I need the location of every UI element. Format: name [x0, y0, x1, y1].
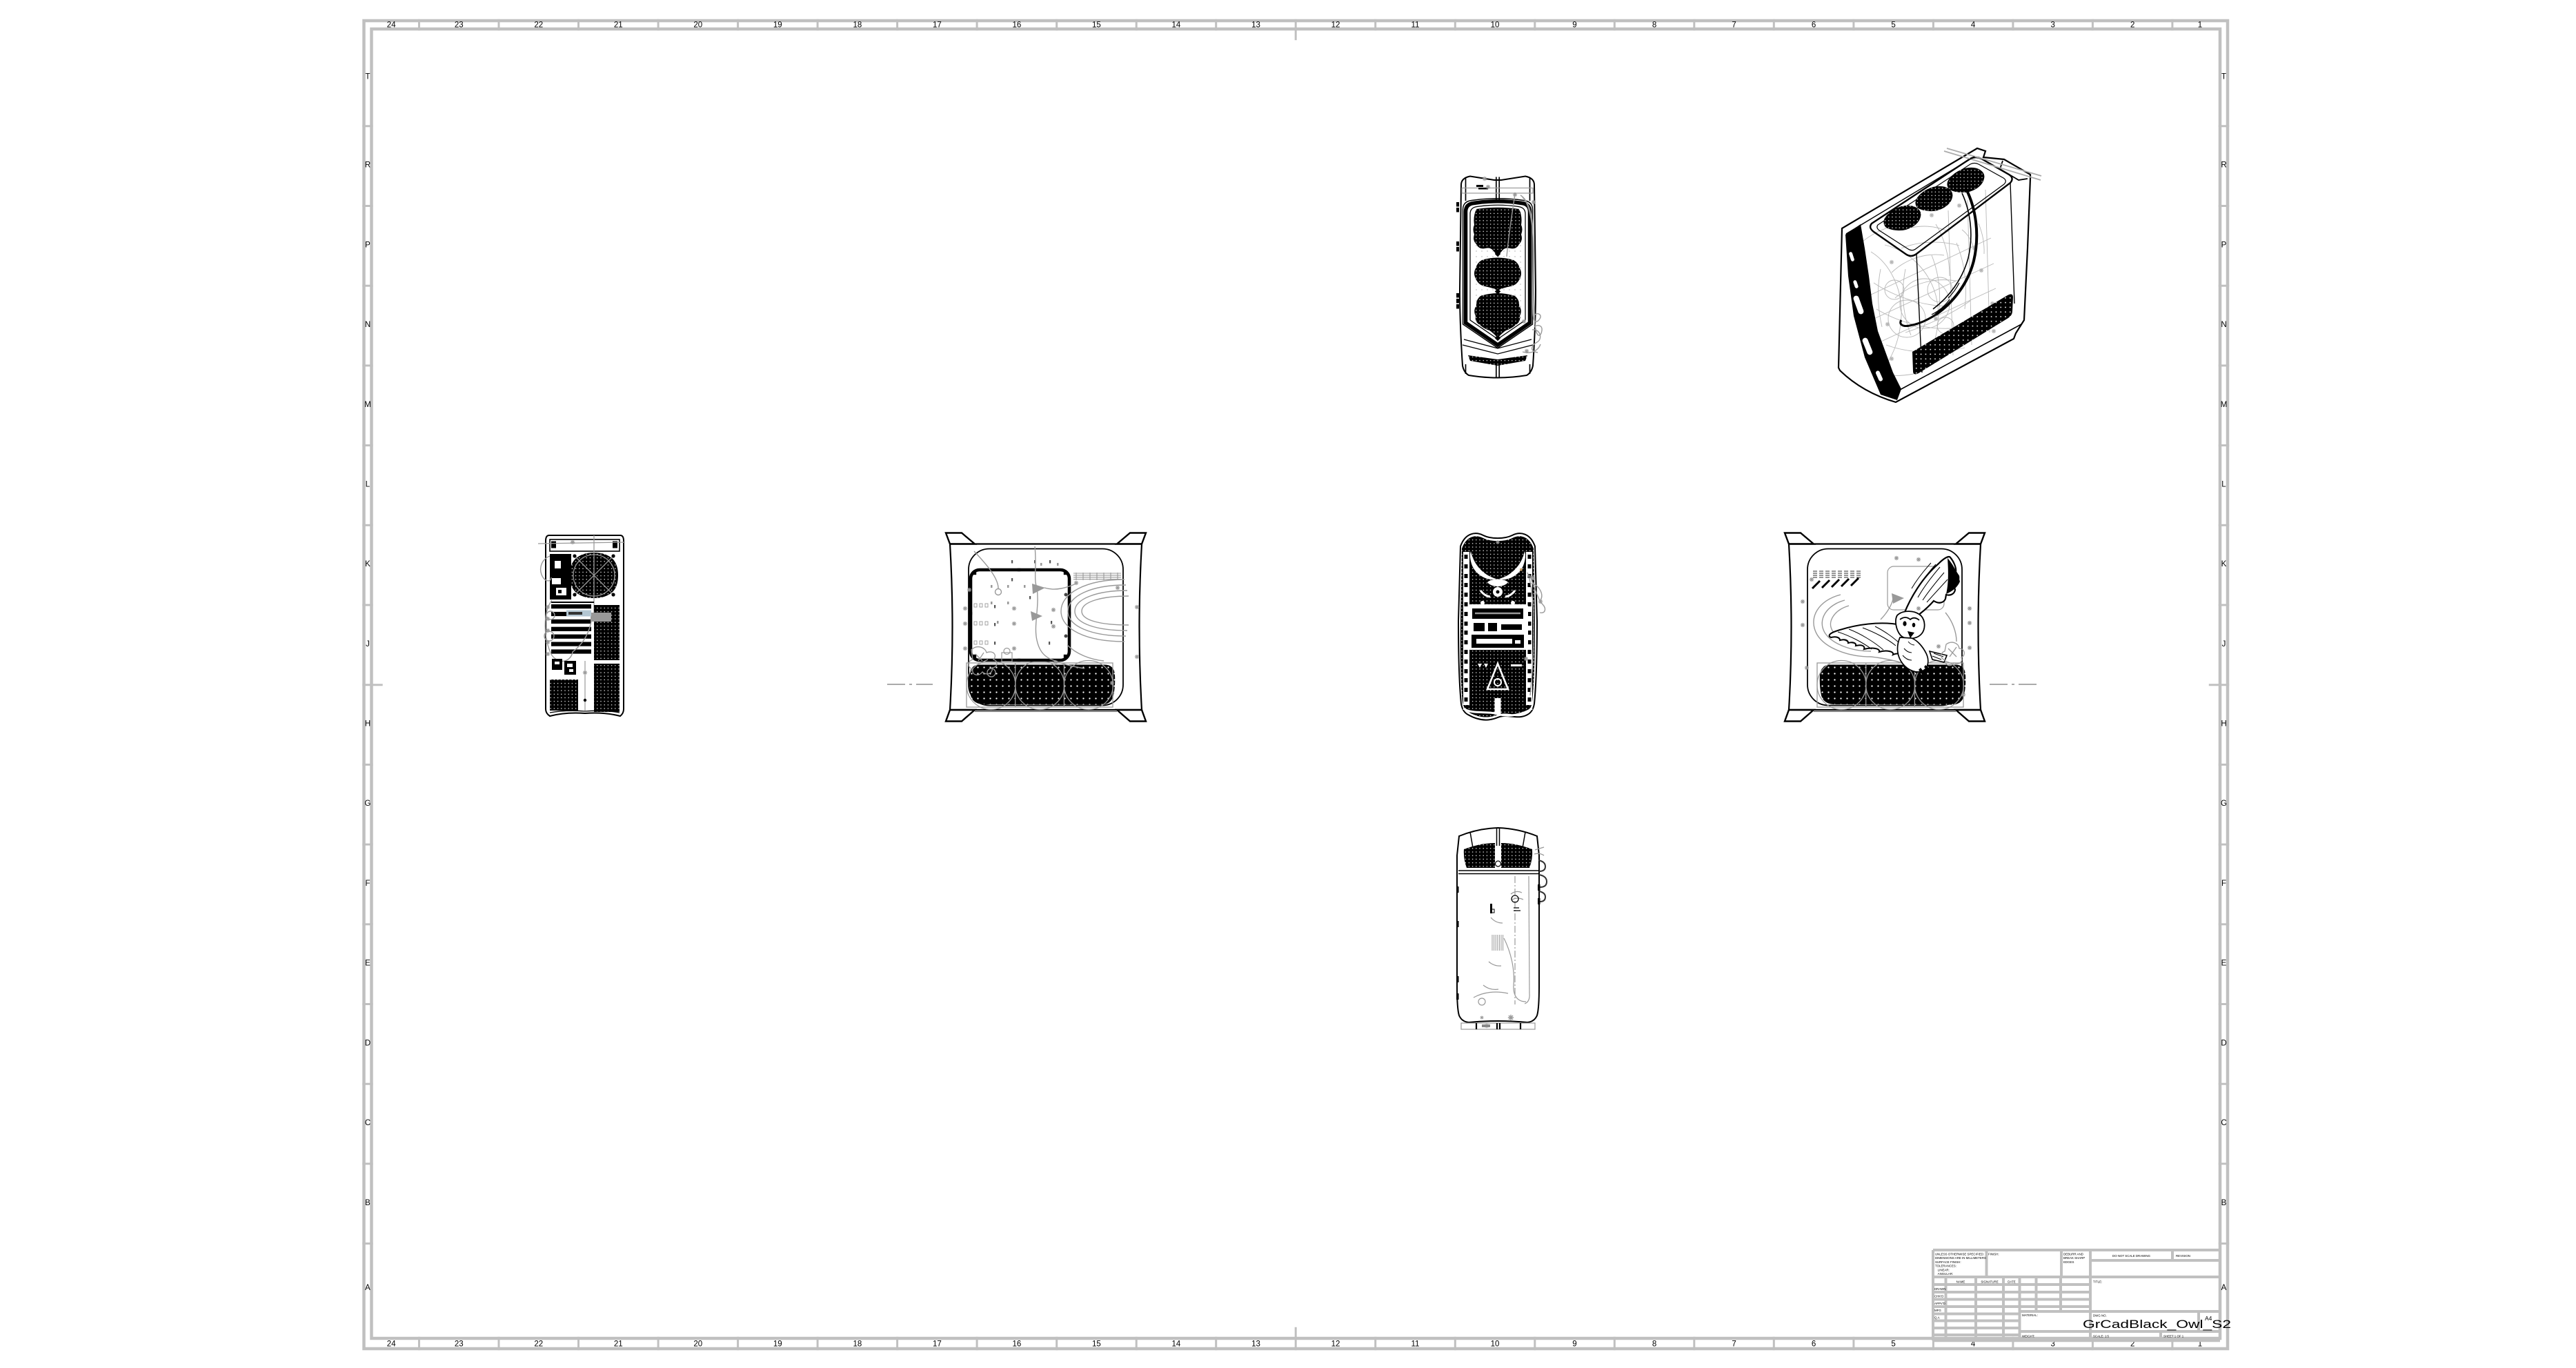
svg-text:T: T: [2221, 72, 2226, 81]
svg-text:SHEET 1 OF 1: SHEET 1 OF 1: [2163, 1335, 2184, 1338]
svg-text:9: 9: [1572, 21, 1576, 30]
svg-text:18: 18: [853, 1340, 862, 1349]
svg-text:16: 16: [1013, 21, 1022, 30]
svg-text:SURFACE FINISH:: SURFACE FINISH:: [1935, 1260, 1961, 1264]
svg-text:16: 16: [1013, 1340, 1022, 1349]
svg-text:UNLESS OTHERWISE SPECIFIED:: UNLESS OTHERWISE SPECIFIED:: [1935, 1253, 1984, 1256]
svg-text:DIMENSIONS ARE IN MILLIMETERS: DIMENSIONS ARE IN MILLIMETERS: [1935, 1256, 1986, 1260]
svg-text:DO NOT SCALE DRAWING: DO NOT SCALE DRAWING: [2112, 1254, 2150, 1258]
svg-text:TITLE:: TITLE:: [2093, 1280, 2102, 1284]
svg-text:7: 7: [1732, 21, 1736, 30]
svg-text:C: C: [365, 1119, 370, 1127]
svg-text:REVISION: REVISION: [2176, 1254, 2190, 1258]
svg-text:14: 14: [1172, 1340, 1181, 1349]
svg-text:DEBURR AND: DEBURR AND: [2063, 1253, 2083, 1256]
svg-text:P: P: [2221, 241, 2227, 249]
svg-text:10: 10: [1491, 21, 1500, 30]
svg-text:10: 10: [1491, 1340, 1500, 1349]
svg-text:7: 7: [1732, 1340, 1736, 1349]
svg-text:F: F: [2221, 880, 2226, 888]
svg-text:17: 17: [933, 21, 942, 30]
svg-text:R: R: [365, 161, 370, 170]
svg-text:H: H: [365, 720, 370, 728]
svg-text:M: M: [2221, 401, 2228, 409]
svg-text:A: A: [365, 1284, 370, 1292]
svg-text:6: 6: [1812, 1340, 1816, 1349]
svg-text:22: 22: [534, 1340, 543, 1349]
svg-text:2: 2: [2130, 21, 2134, 30]
svg-text:SIGNATURE: SIGNATURE: [1981, 1280, 1998, 1284]
svg-text:L: L: [2221, 481, 2226, 489]
svg-text:4: 4: [1971, 21, 1976, 30]
svg-text:MFG: MFG: [1934, 1309, 1941, 1312]
svg-text:11: 11: [1411, 1340, 1420, 1349]
svg-text:E: E: [2221, 960, 2227, 968]
svg-text:NAME: NAME: [1956, 1280, 1965, 1284]
svg-text:C: C: [2221, 1119, 2226, 1127]
svg-text:D: D: [365, 1039, 370, 1047]
svg-text:DWG NO.: DWG NO.: [2093, 1314, 2107, 1318]
svg-text:TOLERANCES:: TOLERANCES:: [1935, 1265, 1956, 1268]
svg-text:18: 18: [853, 21, 862, 30]
svg-text:A: A: [2221, 1284, 2227, 1292]
svg-text:19: 19: [773, 21, 782, 30]
svg-text:3: 3: [2050, 21, 2054, 30]
svg-text:J: J: [2222, 640, 2226, 648]
svg-text:21: 21: [614, 21, 623, 30]
svg-text:R: R: [2221, 161, 2226, 170]
svg-text:GrCadBlack_Owl_S2: GrCadBlack_Owl_S2: [2083, 1318, 2231, 1331]
svg-text:8: 8: [1652, 21, 1656, 30]
svg-text:LINEAR:: LINEAR:: [1935, 1268, 1950, 1271]
svg-text:17: 17: [933, 1340, 942, 1349]
svg-text:ANGULAR:: ANGULAR:: [1935, 1272, 1953, 1276]
svg-text:K: K: [365, 560, 370, 568]
svg-text:20: 20: [693, 1340, 702, 1349]
svg-text:H: H: [2221, 720, 2226, 728]
svg-text:20: 20: [693, 21, 702, 30]
svg-text:15: 15: [1092, 1340, 1101, 1349]
svg-text:B: B: [2221, 1199, 2227, 1207]
svg-text:N: N: [2221, 321, 2226, 329]
svg-text:B: B: [365, 1199, 370, 1207]
svg-text:EDGES: EDGES: [2063, 1260, 2074, 1264]
svg-text:DRAWN: DRAWN: [1934, 1287, 1945, 1291]
svg-text:24: 24: [387, 1340, 396, 1349]
svg-text:DATE: DATE: [2008, 1280, 2015, 1284]
svg-text:13: 13: [1251, 1340, 1260, 1349]
svg-text:1: 1: [2198, 21, 2202, 30]
svg-text:L: L: [366, 481, 370, 489]
svg-text:21: 21: [614, 1340, 623, 1349]
svg-text:5: 5: [1891, 1340, 1895, 1349]
svg-text:K: K: [2221, 560, 2227, 568]
svg-text:CHK'D: CHK'D: [1934, 1294, 1943, 1298]
svg-text:Q.A: Q.A: [1934, 1316, 1940, 1320]
svg-text:M: M: [364, 401, 371, 409]
svg-text:WEIGHT:: WEIGHT:: [2022, 1335, 2034, 1338]
svg-text:8: 8: [1652, 1340, 1656, 1349]
svg-text:19: 19: [773, 1340, 782, 1349]
svg-text:G: G: [2221, 800, 2227, 808]
svg-text:SCALE: 1:5: SCALE: 1:5: [2093, 1335, 2109, 1338]
svg-text:5: 5: [1891, 21, 1895, 30]
svg-text:APPV'D: APPV'D: [1934, 1302, 1945, 1305]
svg-text:13: 13: [1251, 21, 1260, 30]
svg-text:15: 15: [1092, 21, 1101, 30]
svg-text:BREAK SHARP: BREAK SHARP: [2063, 1256, 2085, 1260]
svg-text:12: 12: [1331, 21, 1340, 30]
svg-text:J: J: [366, 640, 370, 648]
svg-text:FINISH:: FINISH:: [1988, 1253, 1999, 1256]
svg-text:9: 9: [1572, 1340, 1576, 1349]
svg-text:D: D: [2221, 1039, 2226, 1047]
svg-text:23: 23: [455, 21, 464, 30]
svg-text:12: 12: [1331, 1340, 1340, 1349]
svg-text:14: 14: [1172, 21, 1181, 30]
svg-text:T: T: [365, 72, 370, 81]
svg-text:MATERIAL:: MATERIAL:: [2022, 1314, 2038, 1317]
svg-text:N: N: [365, 321, 370, 329]
svg-text:23: 23: [455, 1340, 464, 1349]
svg-text:6: 6: [1812, 21, 1816, 30]
svg-text:24: 24: [387, 21, 396, 30]
svg-text:E: E: [365, 960, 370, 968]
svg-text:22: 22: [534, 21, 543, 30]
svg-text:11: 11: [1411, 21, 1420, 30]
svg-text:F: F: [365, 880, 370, 888]
svg-text:P: P: [365, 241, 370, 249]
svg-text:G: G: [365, 800, 371, 808]
